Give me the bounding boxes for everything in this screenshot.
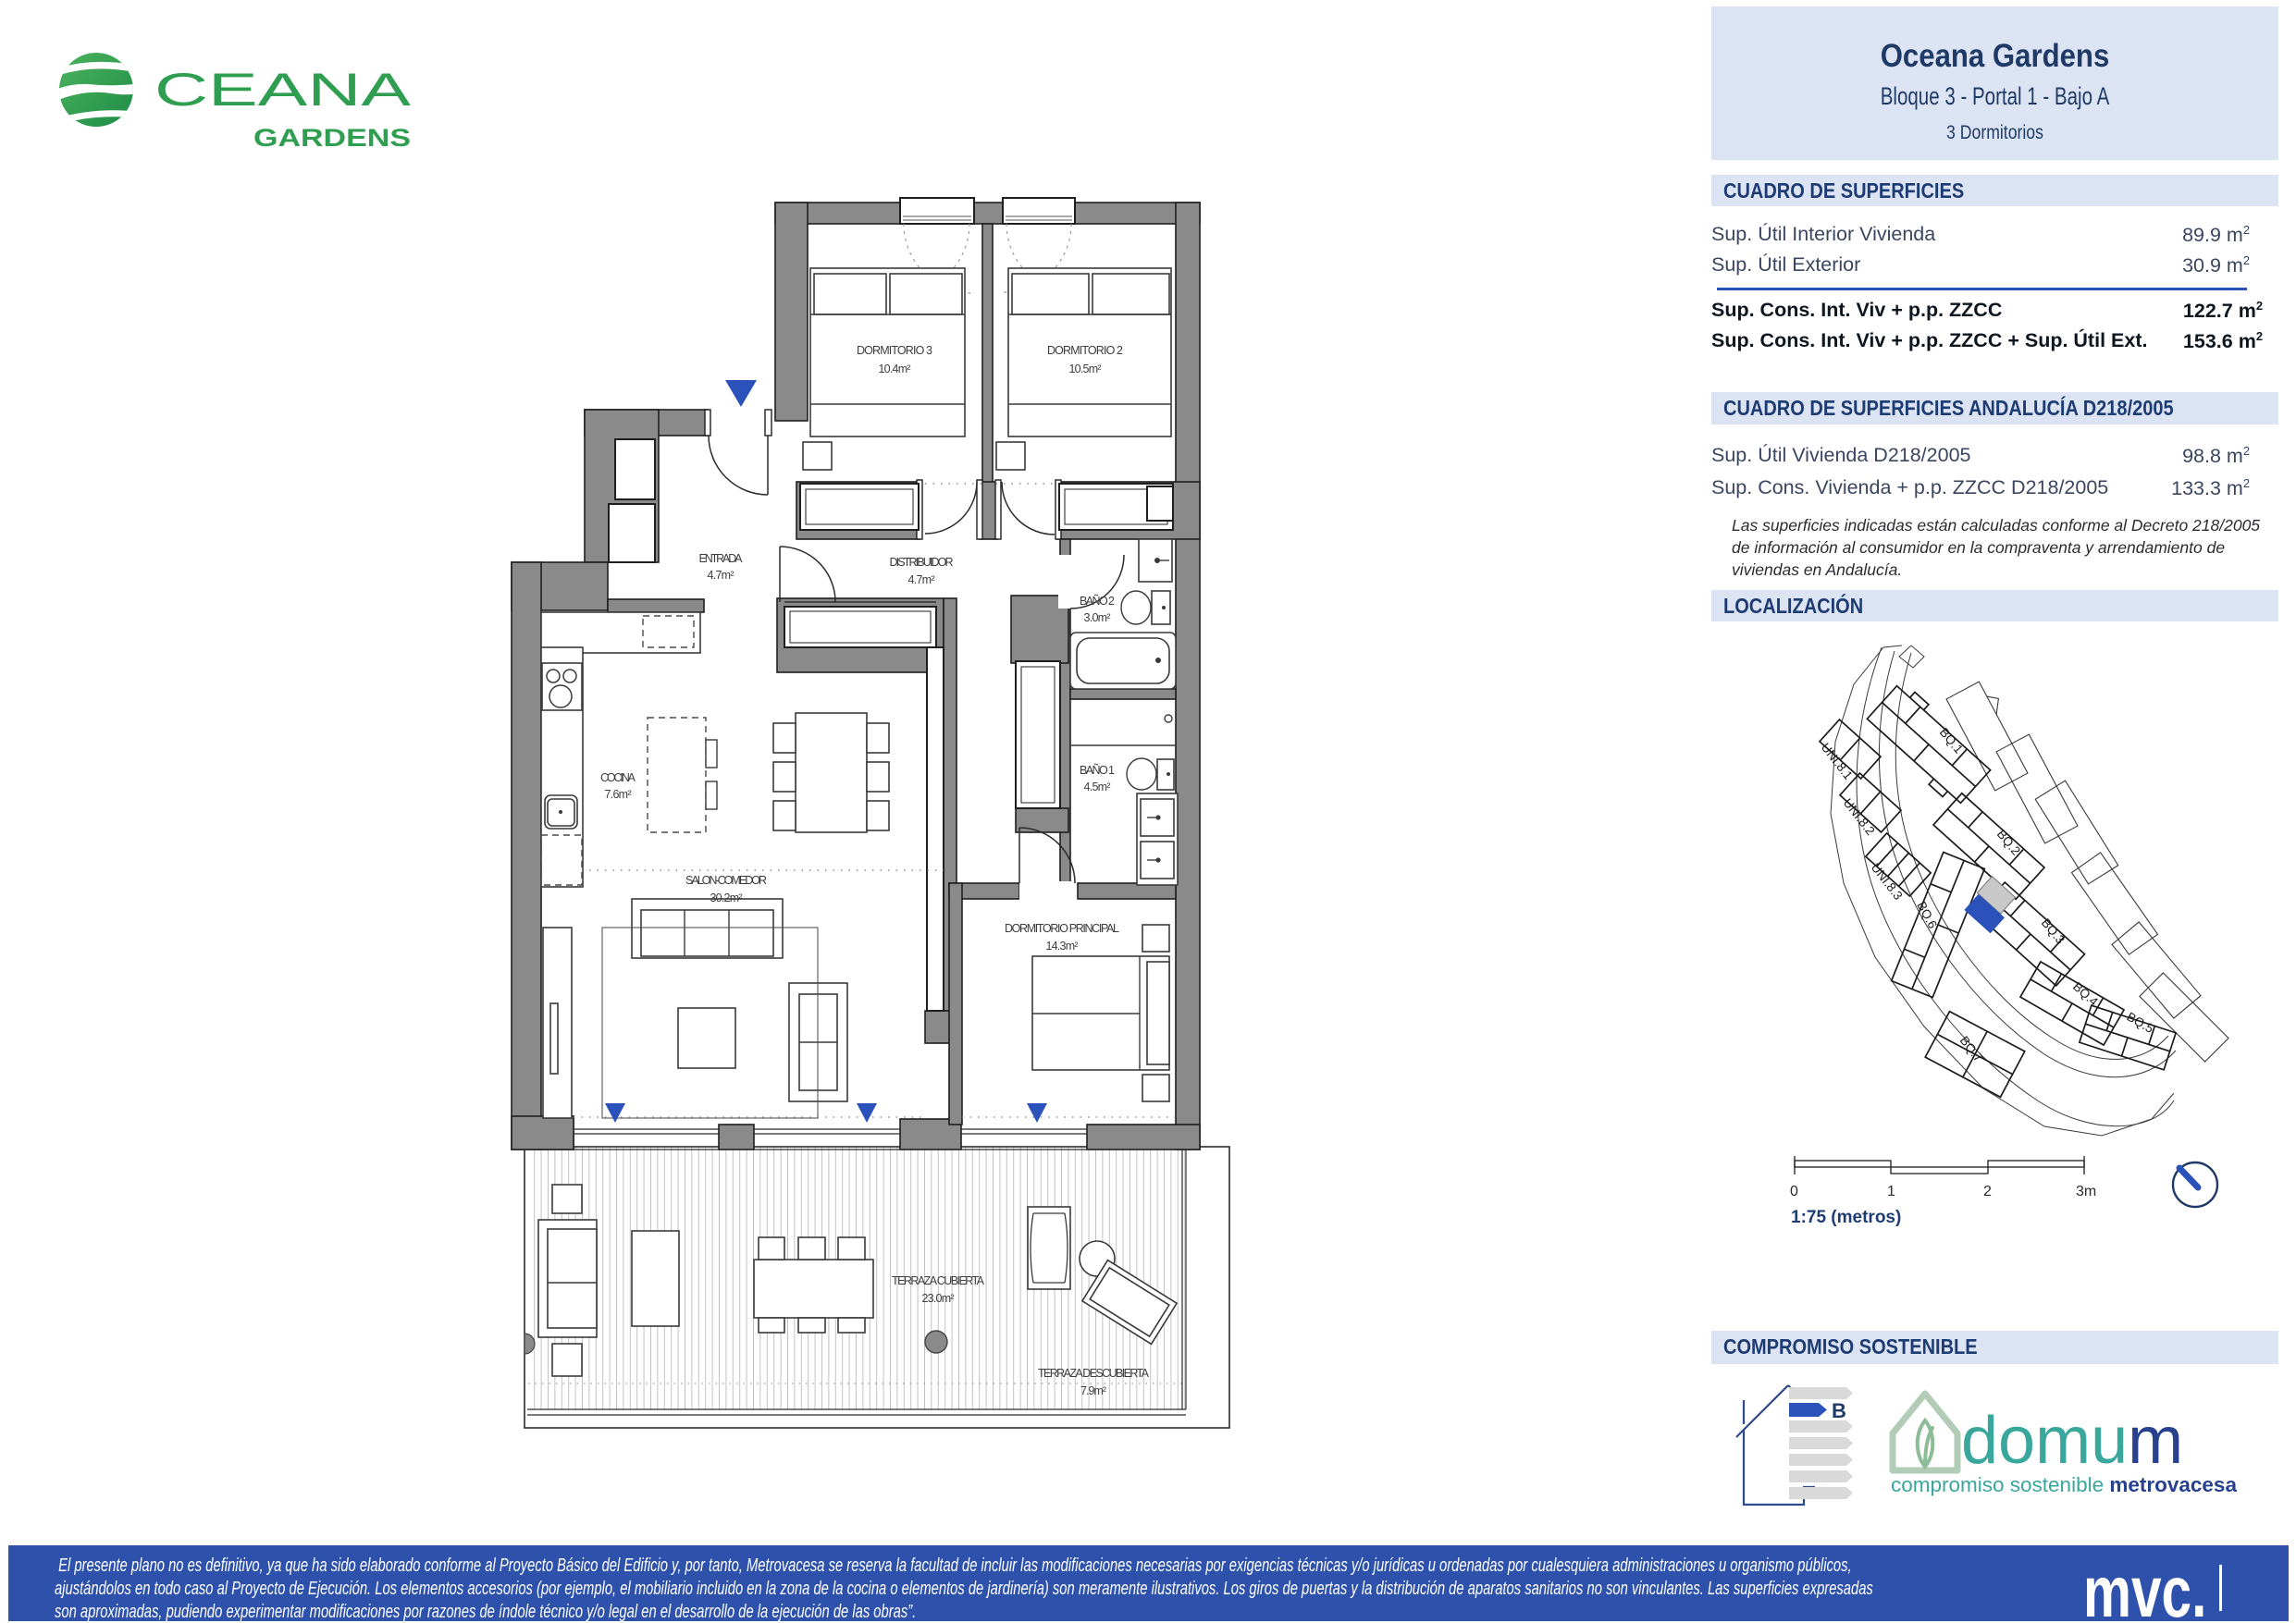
svg-text:7.9m²: 7.9m² [1080,1384,1106,1397]
svg-text:BQ.5: BQ.5 [2125,1010,2156,1036]
svg-text:BQ.7: BQ.7 [1957,1034,1986,1064]
svg-text:UNI.8.3: UNI.8.3 [1869,861,1906,903]
svg-text:4.7m²: 4.7m² [708,569,734,582]
svg-text:TERRAZA CUBIERTA: TERRAZA CUBIERTA [892,1274,985,1287]
svg-text:BQ.2: BQ.2 [1994,827,2023,857]
svg-text:DISTRIBUIDOR: DISTRIBUIDOR [890,556,954,569]
svg-text:BAÑO 1: BAÑO 1 [1080,764,1115,777]
svg-text:10.4m²: 10.4m² [879,363,911,375]
svg-text:3m: 3m [2076,1184,2096,1199]
svg-text:DORMITORIO 2: DORMITORIO 2 [1047,344,1123,357]
svg-text:B: B [1832,1399,1846,1422]
svg-text:ENTRADA: ENTRADA [699,552,744,565]
svg-text:BAÑO 2: BAÑO 2 [1080,595,1115,608]
svg-text:DORMITORIO PRINCIPAL: DORMITORIO PRINCIPAL [1005,922,1119,935]
svg-text:BQ.1: BQ.1 [1937,725,1966,756]
svg-text:1: 1 [1887,1184,1895,1199]
svg-text:3.0m²: 3.0m² [1084,611,1111,624]
svg-text:4.7m²: 4.7m² [908,573,935,586]
svg-text:TERRAZA DESCUBIERTA: TERRAZA DESCUBIERTA [1038,1367,1150,1380]
svg-text:1:75 (metros): 1:75 (metros) [1791,1208,1901,1227]
svg-text:7.6m²: 7.6m² [605,788,632,801]
svg-text:BQ.3: BQ.3 [2039,916,2068,946]
svg-text:DORMITORIO 3: DORMITORIO 3 [857,344,932,357]
svg-text:14.3m²: 14.3m² [1046,940,1079,953]
svg-text:domum: domum [1961,1404,2183,1478]
svg-text:30.2m²: 30.2m² [710,891,743,904]
svg-text:compromiso sostenible metrovac: compromiso sostenible metrovacesa [1891,1473,2237,1496]
svg-text:10.5m²: 10.5m² [1069,363,1102,375]
svg-text:2: 2 [1983,1184,1992,1199]
svg-text:23.0m²: 23.0m² [922,1292,955,1305]
svg-text:4.5m²: 4.5m² [1084,781,1111,793]
svg-text:SALON-COMEDOR: SALON-COMEDOR [685,874,767,887]
svg-text:0: 0 [1790,1184,1798,1199]
svg-text:COCINA: COCINA [600,771,636,784]
svg-text:UNI.8.1: UNI.8.1 [1819,741,1856,782]
